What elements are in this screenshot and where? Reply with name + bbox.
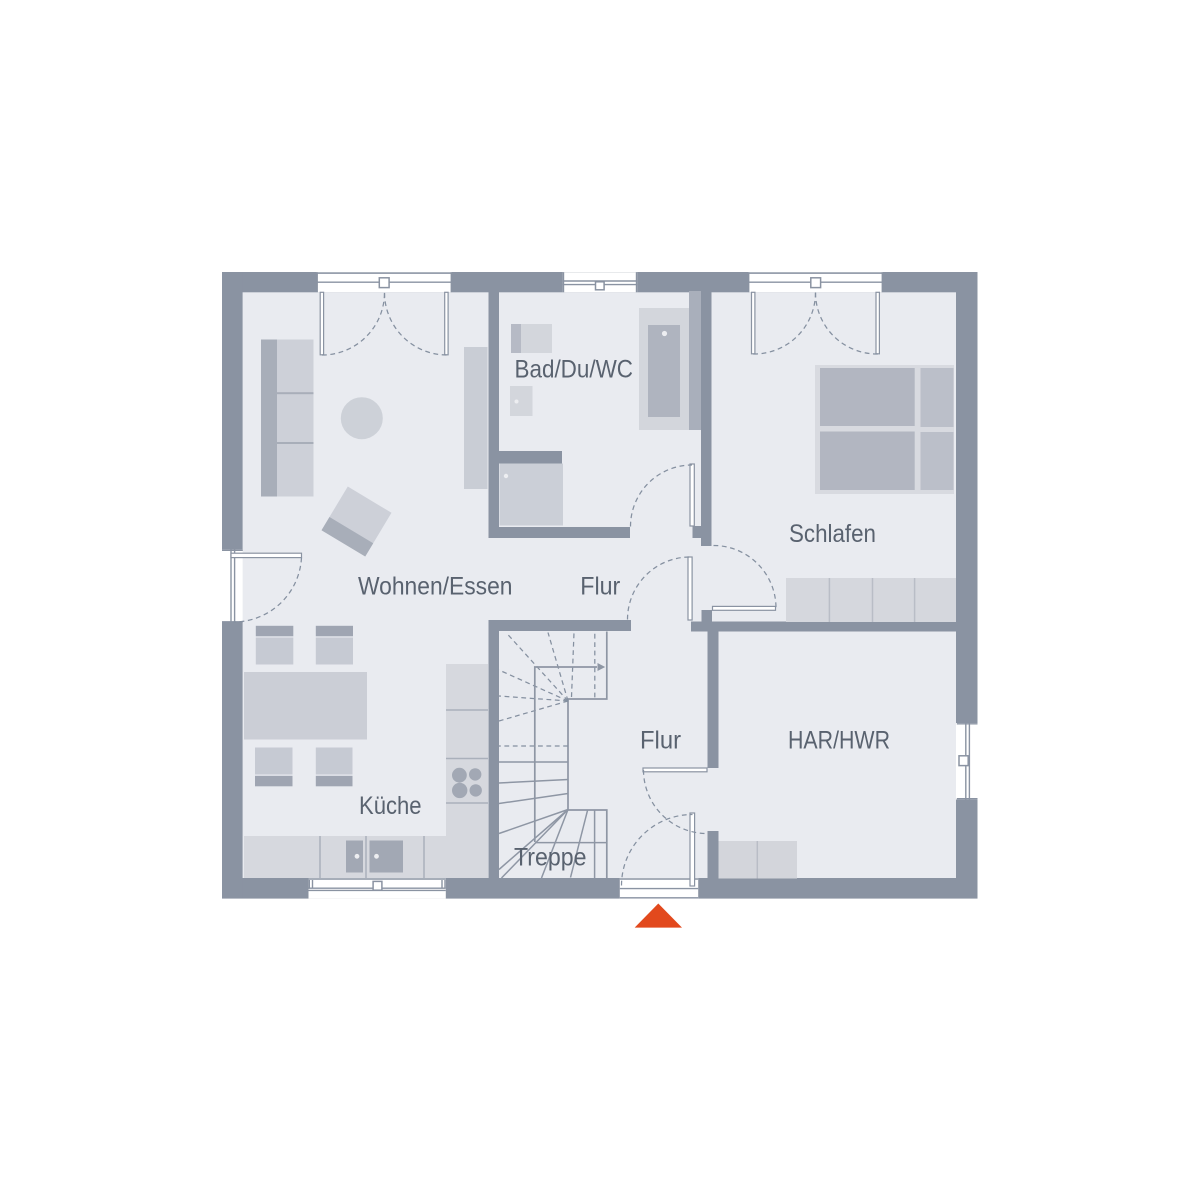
svg-text:Flur: Flur — [640, 727, 681, 755]
svg-text:Bad/Du/WC: Bad/Du/WC — [515, 356, 634, 384]
svg-text:Küche: Küche — [359, 792, 422, 820]
svg-text:Wohnen/Essen: Wohnen/Essen — [358, 573, 513, 601]
svg-text:Schlafen: Schlafen — [789, 520, 876, 548]
svg-text:Treppe: Treppe — [514, 844, 587, 872]
svg-text:HAR/HWR: HAR/HWR — [788, 727, 890, 755]
svg-text:Flur: Flur — [580, 573, 620, 601]
